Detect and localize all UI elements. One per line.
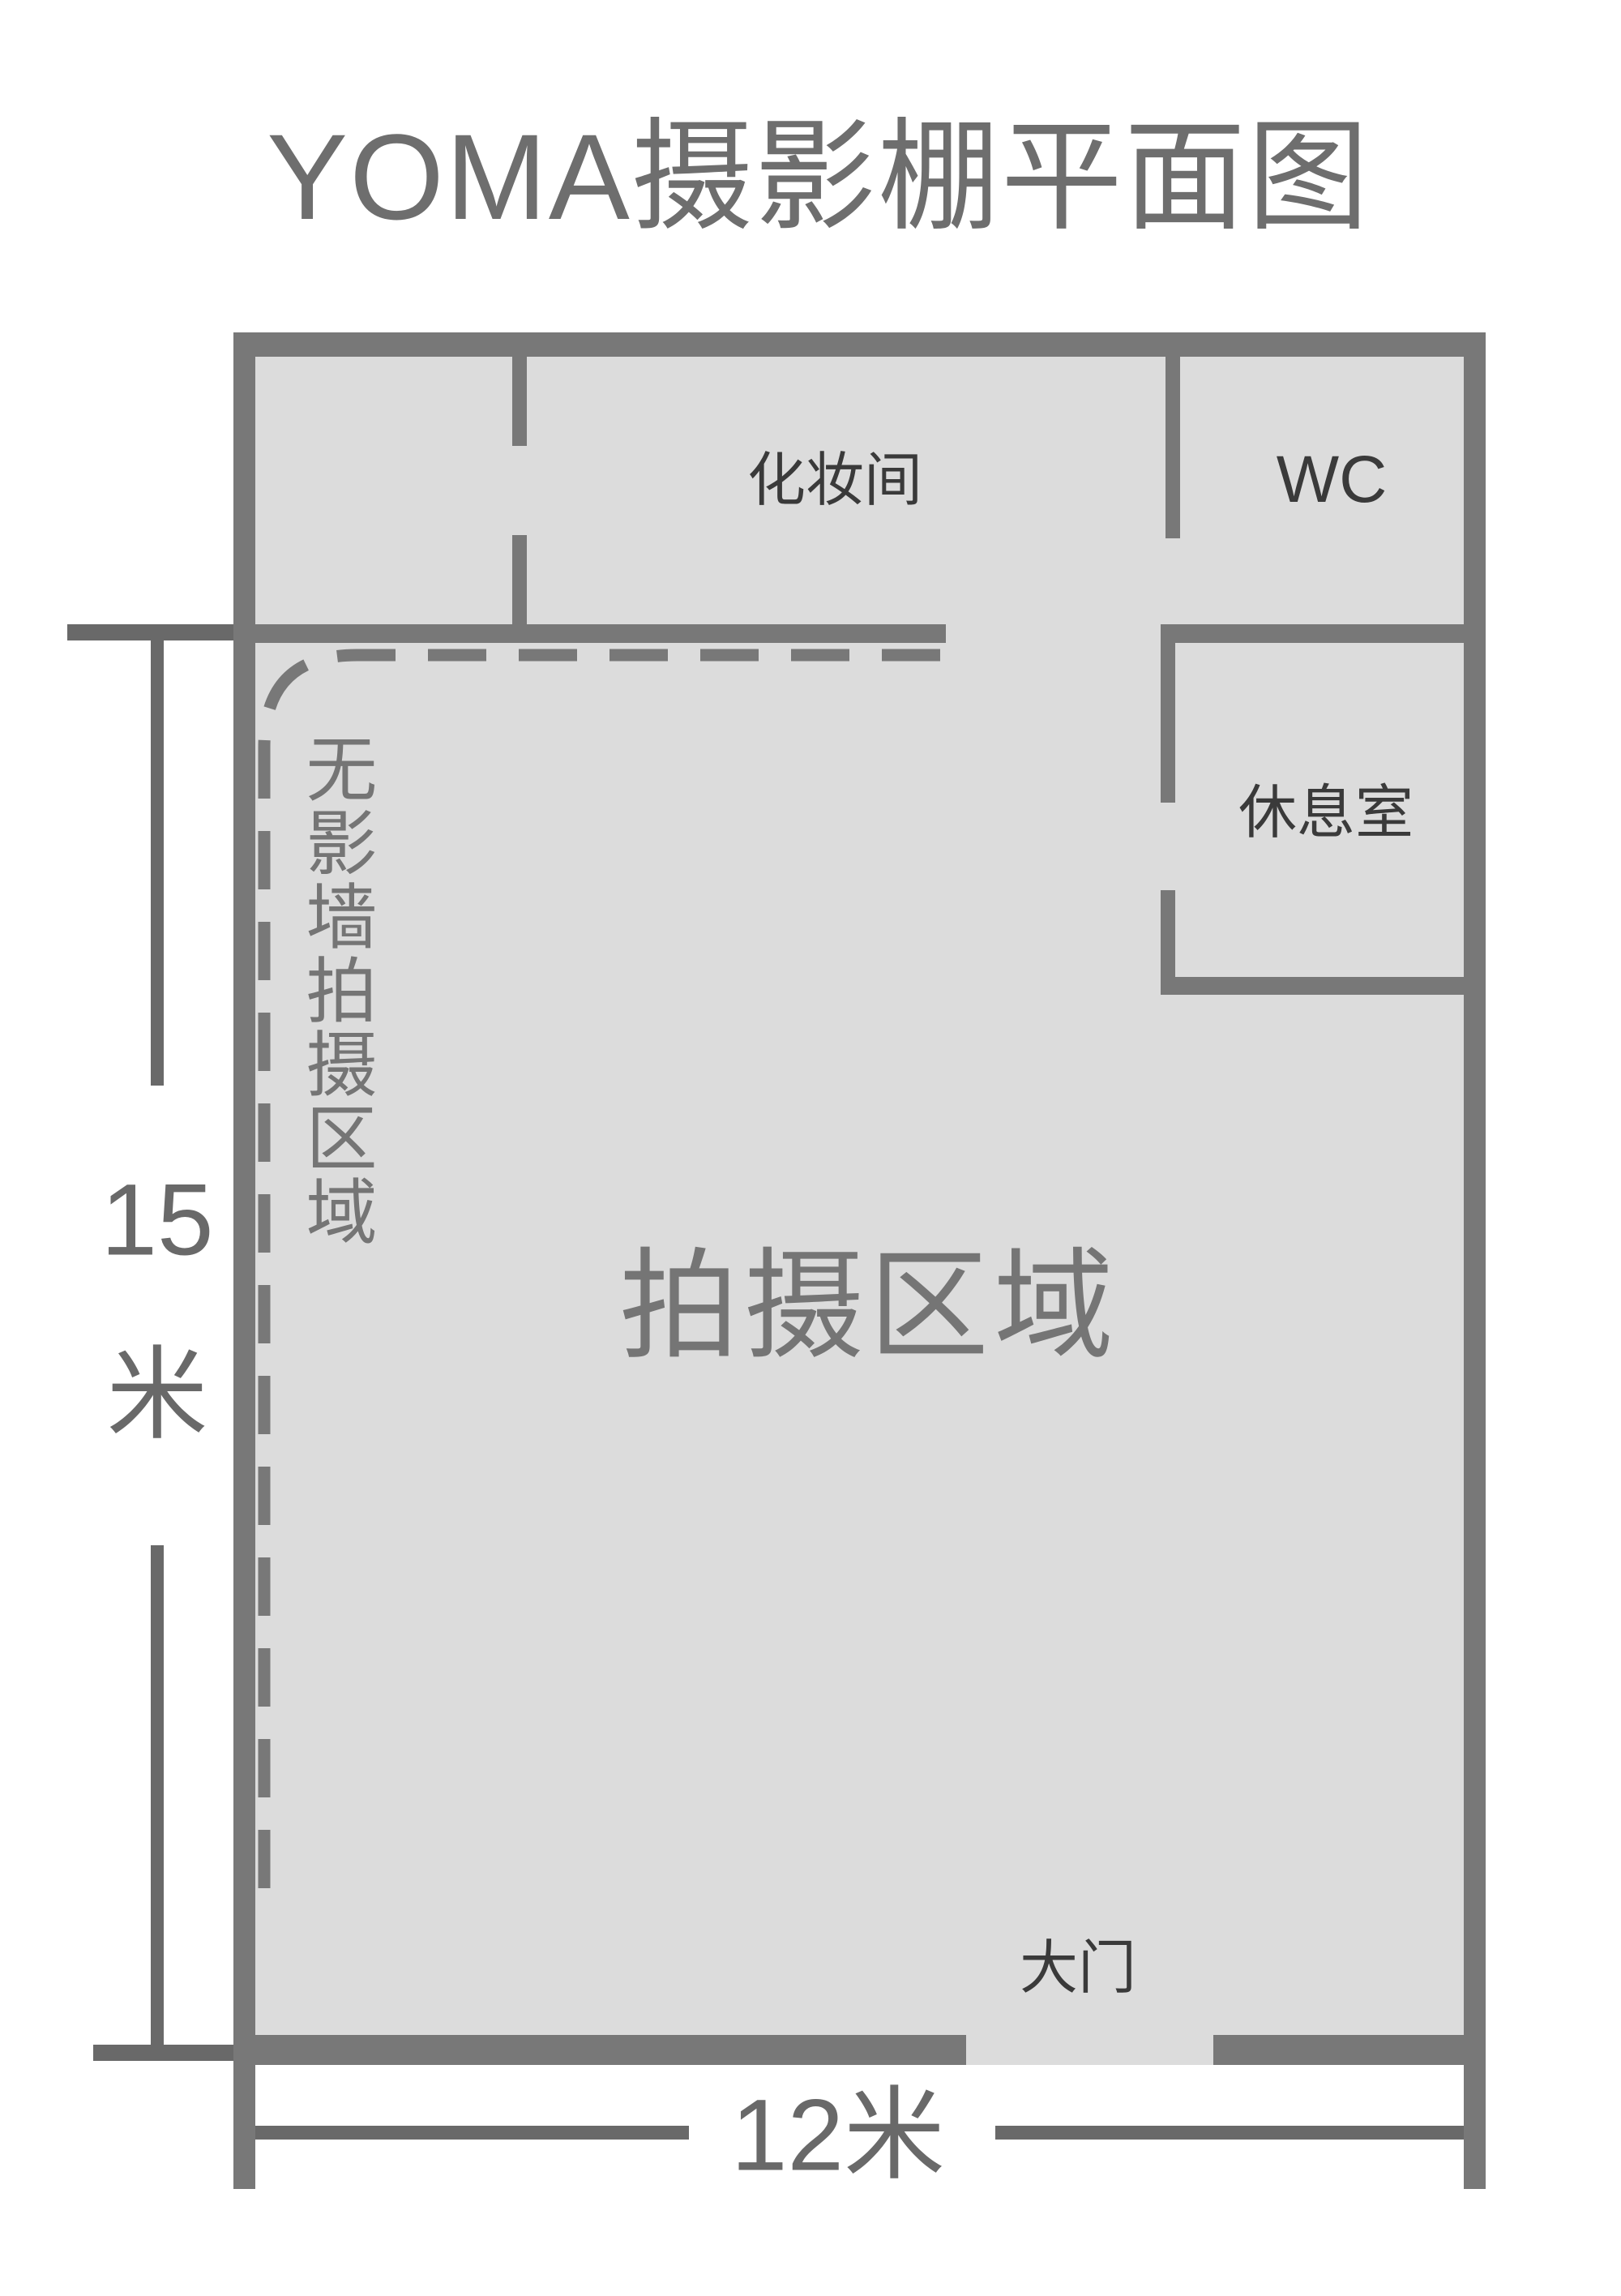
makeup-room-label: 化妆间 [747, 452, 922, 510]
height-dimension-value: 15 [101, 1170, 213, 1271]
cyclorama-dashed-boundary [0, 0, 1621, 2296]
width-dimension-line-right [995, 2126, 1464, 2140]
cyclorama-area-label: 无影墙拍摄区域 [297, 732, 374, 1249]
height-dimension-line-upper [151, 640, 164, 1086]
floor-plan-canvas: YOMA摄影棚平面图 15 米 12米 化妆间 WC 休息室 大门 拍摄区域 无… [0, 0, 1621, 2296]
wc-room-label: WC [1277, 447, 1388, 513]
height-dimension-unit: 米 [107, 1345, 208, 1446]
height-dimension-line-lower [151, 1545, 164, 2045]
width-dimension-line-left [255, 2126, 689, 2140]
width-dimension-label: 12米 [731, 2085, 945, 2187]
height-dimension-bottom-tick [93, 2045, 233, 2061]
entrance-label: 大门 [1020, 1939, 1136, 1998]
shooting-area-label: 拍摄区域 [619, 1247, 1118, 1367]
height-dimension-top-tick [67, 624, 233, 640]
lounge-room-label: 休息室 [1238, 784, 1414, 842]
